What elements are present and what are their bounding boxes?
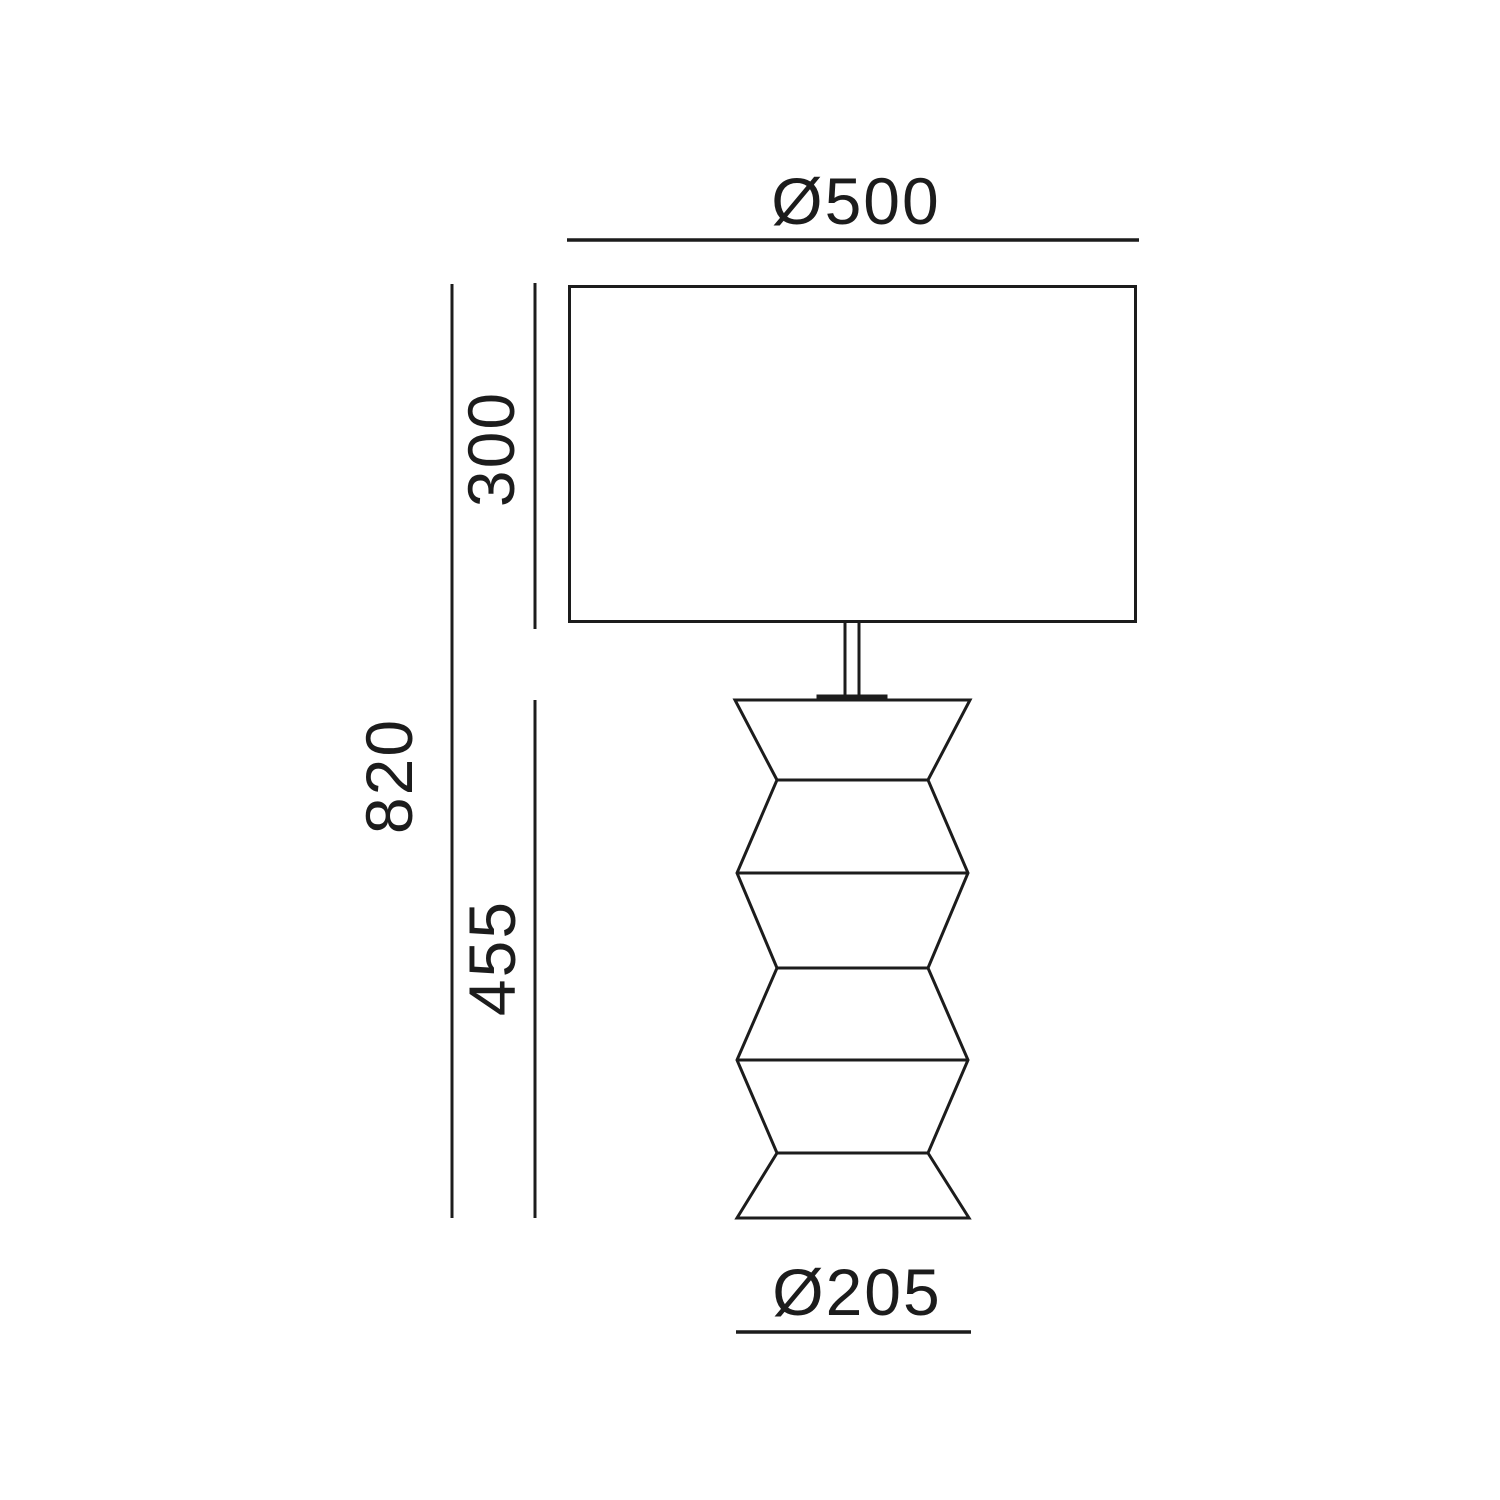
lamp-shade-outline xyxy=(570,287,1136,622)
lamp-body-segment-lines xyxy=(737,780,968,1153)
base-diameter-label: Ø205 xyxy=(772,1259,941,1325)
base-height-label: 455 xyxy=(459,900,525,1016)
lamp-body-outline xyxy=(735,700,970,1218)
shade-height-label: 300 xyxy=(458,391,524,507)
overall-height-label: 820 xyxy=(356,718,422,834)
lamp-technical-drawing xyxy=(0,0,1500,1500)
dimension-drawing-canvas: Ø500 300 820 455 Ø205 xyxy=(0,0,1500,1500)
lamp-stem xyxy=(817,623,888,701)
shade-diameter-label: Ø500 xyxy=(771,168,940,234)
